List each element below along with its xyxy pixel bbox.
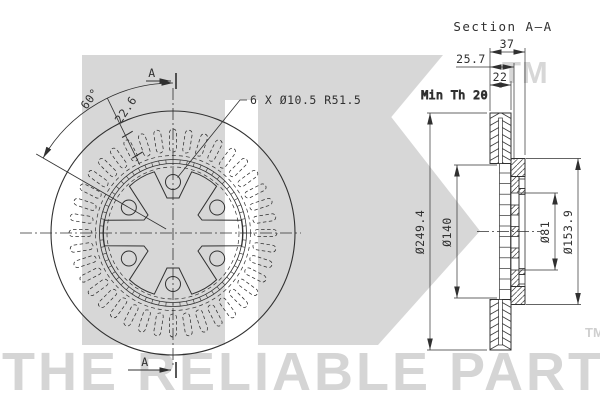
dim-25-7-label: 25.7 [456,52,486,66]
dim-vent-diameter-label: Ø140 [440,217,454,247]
brake-disc-technical-drawing: TM THE RELIABLE PART TM A A [0,0,600,400]
top-vent-channel [499,118,503,164]
logo-k-counter [378,100,480,345]
dim-22-label: 22 [493,70,508,84]
section-title: Section A–A [453,19,552,34]
section-label-top: A [148,66,155,80]
bottom-vent-channel [499,300,503,346]
dim-hat-diameter-label: Ø153.9 [561,210,575,255]
min-thickness-note: Min Th 20 [421,88,488,102]
drawing-canvas: TM THE RELIABLE PART TM A A [0,0,600,400]
dim-bore-diameter-label: Ø81 [538,221,552,243]
dim-hat-diameter: Ø153.9 [526,159,581,305]
hat-flange-top [511,159,525,177]
section-label-bottom: A [141,355,148,369]
dim-37-label: 37 [500,37,515,51]
hat-flange-bottom [511,287,525,305]
holes-note-label: 6 X Ø10.5 R51.5 [250,93,361,107]
dim-outer-diameter-label: Ø249.4 [413,210,427,255]
tagline-text: THE RELIABLE PART [2,342,600,400]
trademark-bottom-text: TM [585,325,600,340]
